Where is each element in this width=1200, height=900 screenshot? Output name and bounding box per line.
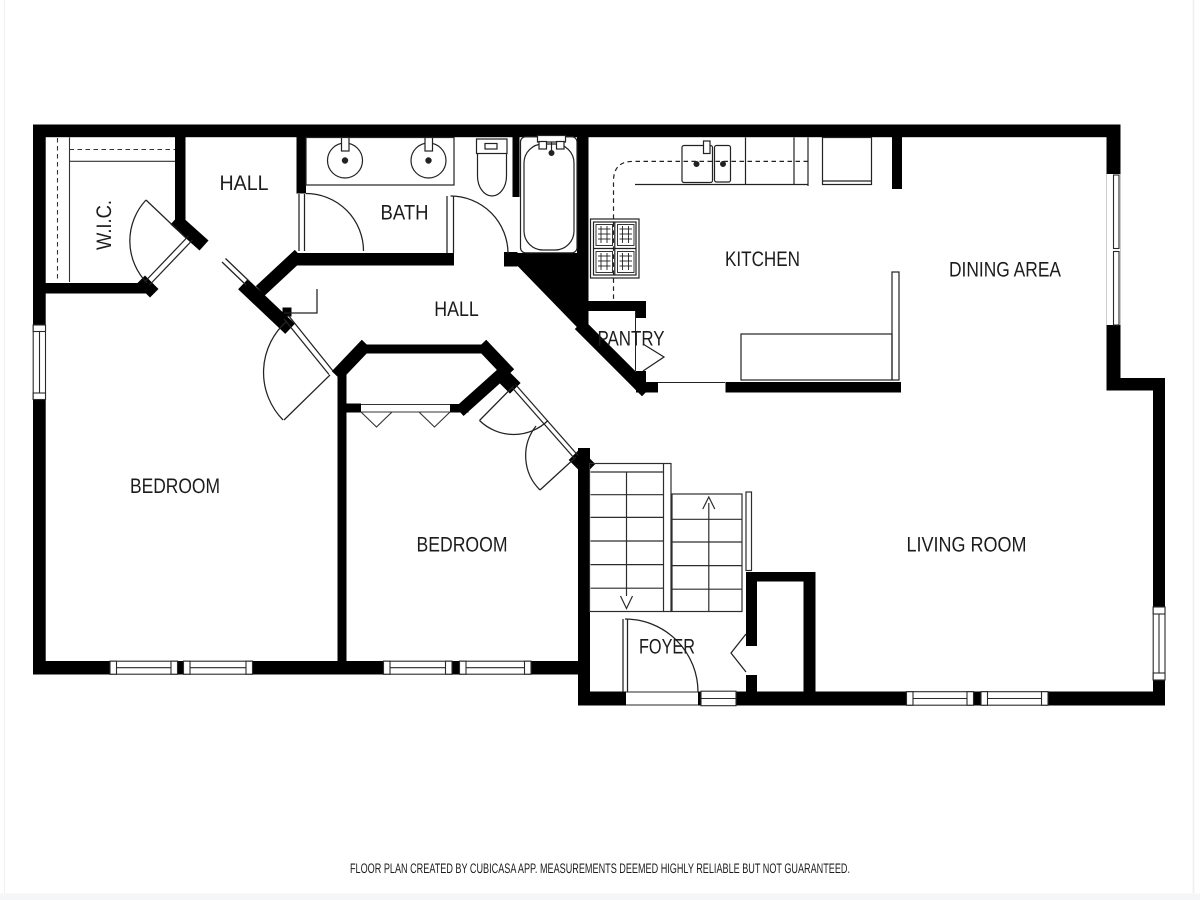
svg-text:HALL: HALL xyxy=(434,298,479,321)
svg-text:FOYER: FOYER xyxy=(639,636,695,659)
svg-text:HALL: HALL xyxy=(220,172,269,195)
svg-text:DINING AREA: DINING AREA xyxy=(949,259,1061,282)
svg-text:KITCHEN: KITCHEN xyxy=(725,248,800,271)
svg-text:BEDROOM: BEDROOM xyxy=(417,534,508,557)
svg-text:BEDROOM: BEDROOM xyxy=(130,475,220,498)
svg-text:FLOOR PLAN CREATED BY CUBICASA: FLOOR PLAN CREATED BY CUBICASA APP. MEAS… xyxy=(350,861,850,876)
svg-text:LIVING ROOM: LIVING ROOM xyxy=(907,534,1027,557)
svg-text:W.I.C.: W.I.C. xyxy=(93,200,116,250)
svg-text:PANTRY: PANTRY xyxy=(598,328,665,351)
svg-text:BATH: BATH xyxy=(381,202,429,225)
